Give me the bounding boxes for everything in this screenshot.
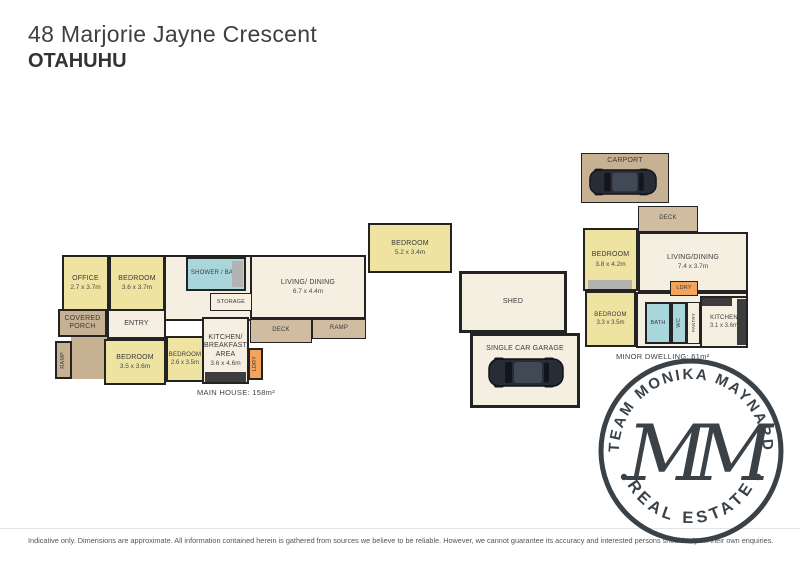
room-dims: 3.6 x 3.7m xyxy=(122,284,152,291)
room-label: BEDROOM xyxy=(116,354,154,362)
minor-kitchen-counter-right xyxy=(737,299,746,345)
room-laundry: LDRY xyxy=(248,348,263,380)
room-label: DECK xyxy=(659,215,676,222)
room-label: LDRY xyxy=(252,356,259,371)
minor-kitchen-counter-top xyxy=(702,298,732,306)
room-minor-bath: BATH xyxy=(645,302,671,344)
room-dims: 3.3 x 3.5m xyxy=(596,320,624,327)
room-shed: SHED xyxy=(459,271,567,333)
room-bedroom-1: BEDROOM 3.6 x 3.7m xyxy=(109,255,165,311)
room-label: LIVING/DINING xyxy=(667,254,719,262)
kitchen-counter xyxy=(205,372,246,382)
room-label: BEDROOM xyxy=(592,251,630,259)
room-label: SINGLE CAR GARAGE xyxy=(486,345,564,353)
wardrobe-fixture xyxy=(588,280,632,289)
room-storage: STORAGE xyxy=(210,293,252,311)
room-label: BATH xyxy=(650,320,665,327)
room-label: BEDROOM xyxy=(169,352,201,359)
room-label: LIVING/ DINING xyxy=(281,279,335,287)
room-label: LDRY xyxy=(676,285,691,292)
room-label: DECK xyxy=(272,327,289,334)
room-dims: 2.7 x 3.7m xyxy=(70,284,100,291)
room-dims: 2.6 x 3.5m xyxy=(171,360,199,367)
agency-stamp: TEAM MONIKA MAYNARD REAL ESTATE MM xyxy=(596,356,786,546)
room-dims: 3.1 x 3.6m xyxy=(710,323,738,330)
porch-extension xyxy=(71,337,107,379)
room-label: KITCHEN xyxy=(710,315,738,322)
stamp-monogram: MM xyxy=(625,409,775,499)
room-dims: 3.8 x 4.2m xyxy=(595,261,625,268)
room-ramp-left: RAMP xyxy=(55,341,72,379)
room-deck: DECK xyxy=(250,319,312,343)
room-label: PANTRY xyxy=(691,313,696,332)
room-bedroom-2: BEDROOM 3.5 x 3.6m xyxy=(104,339,166,385)
page-title: 48 Marjorie Jayne Crescent OTAHUHU xyxy=(28,20,317,73)
room-minor-laundry: LDRY xyxy=(670,281,698,296)
room-minor-wc: WC xyxy=(671,302,687,344)
room-label: BEDROOM xyxy=(594,312,626,319)
room-minor-bedroom-2: BEDROOM 3.3 x 3.5m xyxy=(585,291,636,347)
room-minor-pantry: PANTRY xyxy=(687,302,700,344)
room-dims: 3.6 x 4.6m xyxy=(210,360,240,367)
floorplan-page: 48 Marjorie Jayne Crescent OTAHUHU LIVIN… xyxy=(0,0,800,566)
room-label: COVERED PORCH xyxy=(60,315,105,332)
room-dims: 6.7 x 4.4m xyxy=(293,288,323,295)
room-label: SHED xyxy=(503,298,523,306)
room-dims: 3.5 x 3.6m xyxy=(120,363,150,370)
room-office: OFFICE 2.7 x 3.7m xyxy=(62,255,109,311)
room-label: RAMP xyxy=(60,352,67,369)
room-entry: ENTRY xyxy=(107,309,166,339)
room-label: ENTRY xyxy=(124,320,149,328)
address-line: 48 Marjorie Jayne Crescent xyxy=(28,20,317,49)
room-label: STORAGE xyxy=(217,299,245,306)
room-label: RAMP xyxy=(330,325,348,332)
car-top-view-garage xyxy=(488,357,564,388)
car-top-view-carport xyxy=(589,167,657,197)
room-label: OFFICE xyxy=(72,275,99,283)
main-house-caption: MAIN HOUSE: 158m² xyxy=(197,388,275,397)
room-living-dining: LIVING/ DINING 6.7 x 4.4m xyxy=(250,255,366,319)
room-label: CARPORT xyxy=(607,157,643,165)
room-label: BEDROOM xyxy=(118,275,156,283)
room-label: KITCHEN/ BREAKFAST AREA xyxy=(204,334,247,359)
room-label: BEDROOM xyxy=(391,240,429,248)
room-minor-deck: DECK xyxy=(638,206,698,232)
room-bedroom-3: BEDROOM 2.6 x 3.5m xyxy=(166,336,204,382)
room-ramp-rear: RAMP xyxy=(312,319,366,339)
room-dims: 5.2 x 3.4m xyxy=(395,249,425,256)
shower-fixture xyxy=(232,261,243,287)
room-dims: 7.4 x 3.7m xyxy=(678,263,708,270)
room-label: WC xyxy=(676,318,683,328)
room-bedroom-4: BEDROOM 5.2 x 3.4m xyxy=(368,223,452,273)
suburb-line: OTAHUHU xyxy=(28,49,317,73)
room-covered-porch: COVERED PORCH xyxy=(58,309,107,337)
